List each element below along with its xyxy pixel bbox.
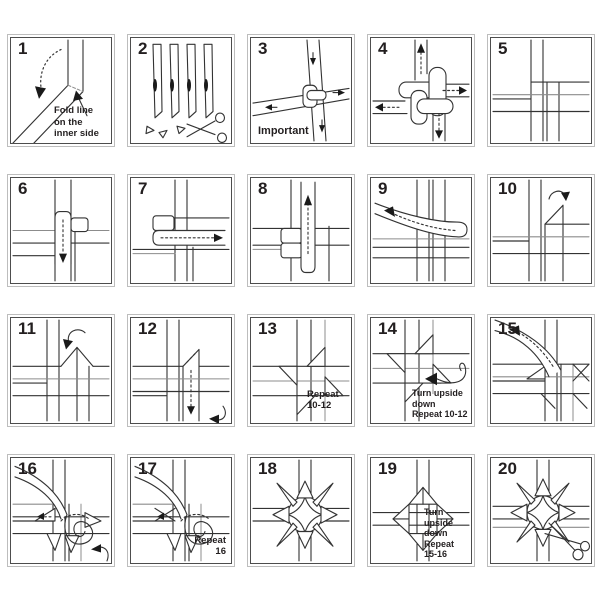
step-panel-2: 2 <box>127 34 235 147</box>
step-number: 20 <box>498 460 517 477</box>
step-panel-9: 9 <box>367 174 475 287</box>
flip-arrow-icon <box>425 363 466 385</box>
step-caption: Turn upside down Repeat 10-12 <box>412 388 468 420</box>
step-frame: 3 Important <box>250 37 352 144</box>
step-caption: Repeat 16 <box>194 535 226 557</box>
step-panel-14: 14 Turn upside down Repeat 10-12 <box>367 314 475 427</box>
step-number: 19 <box>378 460 397 477</box>
step-panel-6: 6 <box>7 174 115 287</box>
paper-strips <box>153 44 213 118</box>
cut-scraps <box>146 126 185 138</box>
step-panel-15: 15 <box>487 314 595 427</box>
step-caption: Important <box>258 125 309 138</box>
step-frame: 7 <box>130 177 232 284</box>
step-number: 11 <box>18 320 36 337</box>
step-frame: 1 Fold line on the inner side <box>10 37 112 144</box>
step-panel-11: 11 <box>7 314 115 427</box>
step-number: 5 <box>498 40 507 57</box>
step-frame: 16 <box>10 457 112 564</box>
step-panel-19: 19 Turn upside down Repeat 15-16 <box>367 454 475 567</box>
step-frame: 18 <box>250 457 352 564</box>
step-frame: 15 <box>490 317 592 424</box>
step-frame: 17 Repeat 16 <box>130 457 232 564</box>
step-panel-10: 10 <box>487 174 595 287</box>
step-number: 1 <box>18 40 27 57</box>
rotate-arrow-icon <box>63 330 85 350</box>
step-frame: 9 <box>370 177 472 284</box>
rotate-arrow-icon <box>209 406 225 423</box>
step-number: 17 <box>138 460 157 477</box>
step-frame: 6 <box>10 177 112 284</box>
step-frame: 5 <box>490 37 592 144</box>
step-number: 6 <box>18 180 27 197</box>
step-number: 12 <box>138 320 157 337</box>
step-frame: 12 <box>130 317 232 424</box>
step-number: 7 <box>138 180 147 197</box>
step-panel-4: 4 <box>367 34 475 147</box>
step-number: 4 <box>378 40 387 57</box>
step-caption: Repeat 10-12 <box>307 389 339 411</box>
step-panel-20: 20 <box>487 454 595 567</box>
step-panel-16: 16 <box>7 454 115 567</box>
step-number: 9 <box>378 180 387 197</box>
fold-direction-arrow-icon <box>35 50 61 99</box>
instruction-grid: 1 Fold line on the inner side 2 <box>0 0 600 567</box>
step-number: 13 <box>258 320 277 337</box>
step-panel-5: 5 <box>487 34 595 147</box>
rotate-arrow-icon <box>91 544 108 561</box>
step-panel-13: 13 Repeat 10-12 <box>247 314 355 427</box>
pull-arrow-icon <box>187 371 195 415</box>
step-number: 3 <box>258 40 267 57</box>
step-frame: 8 <box>250 177 352 284</box>
step-frame: 2 <box>130 37 232 144</box>
step-frame: 10 <box>490 177 592 284</box>
step-frame: 11 <box>10 317 112 424</box>
step-frame: 19 Turn upside down Repeat 15-16 <box>370 457 472 564</box>
step-number: 8 <box>258 180 267 197</box>
step-number: 10 <box>498 180 517 197</box>
step-panel-17: 17 Repeat 16 <box>127 454 235 567</box>
step-number: 16 <box>18 460 37 477</box>
step-frame: 20 <box>490 457 592 564</box>
step-frame: 14 Turn upside down Repeat 10-12 <box>370 317 472 424</box>
step-panel-8: 8 <box>247 174 355 287</box>
step-panel-7: 7 <box>127 174 235 287</box>
step-caption: Turn upside down Repeat 15-16 <box>424 507 471 560</box>
step-number: 2 <box>138 40 147 57</box>
step-panel-18: 18 <box>247 454 355 567</box>
scissors-icon <box>545 523 590 560</box>
step-caption: Fold line on the inner side <box>54 105 108 139</box>
rotate-arrow-icon <box>549 191 570 201</box>
step-frame: 13 Repeat 10-12 <box>250 317 352 424</box>
step-panel-1: 1 Fold line on the inner side <box>7 34 115 147</box>
step-number: 15 <box>498 320 517 337</box>
step-panel-12: 12 <box>127 314 235 427</box>
step-number: 18 <box>258 460 277 477</box>
step-number: 14 <box>378 320 397 337</box>
step-panel-3: 3 Important <box>247 34 355 147</box>
step-frame: 4 <box>370 37 472 144</box>
